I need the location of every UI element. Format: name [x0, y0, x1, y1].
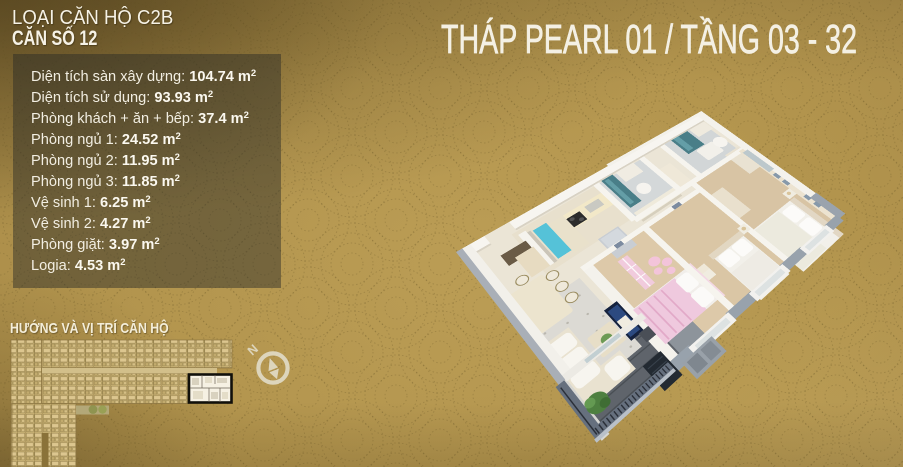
- svg-text:THÁP PEARL 01 / TẦNG 03 - 32: THÁP PEARL 01 / TẦNG 03 - 32: [441, 16, 857, 62]
